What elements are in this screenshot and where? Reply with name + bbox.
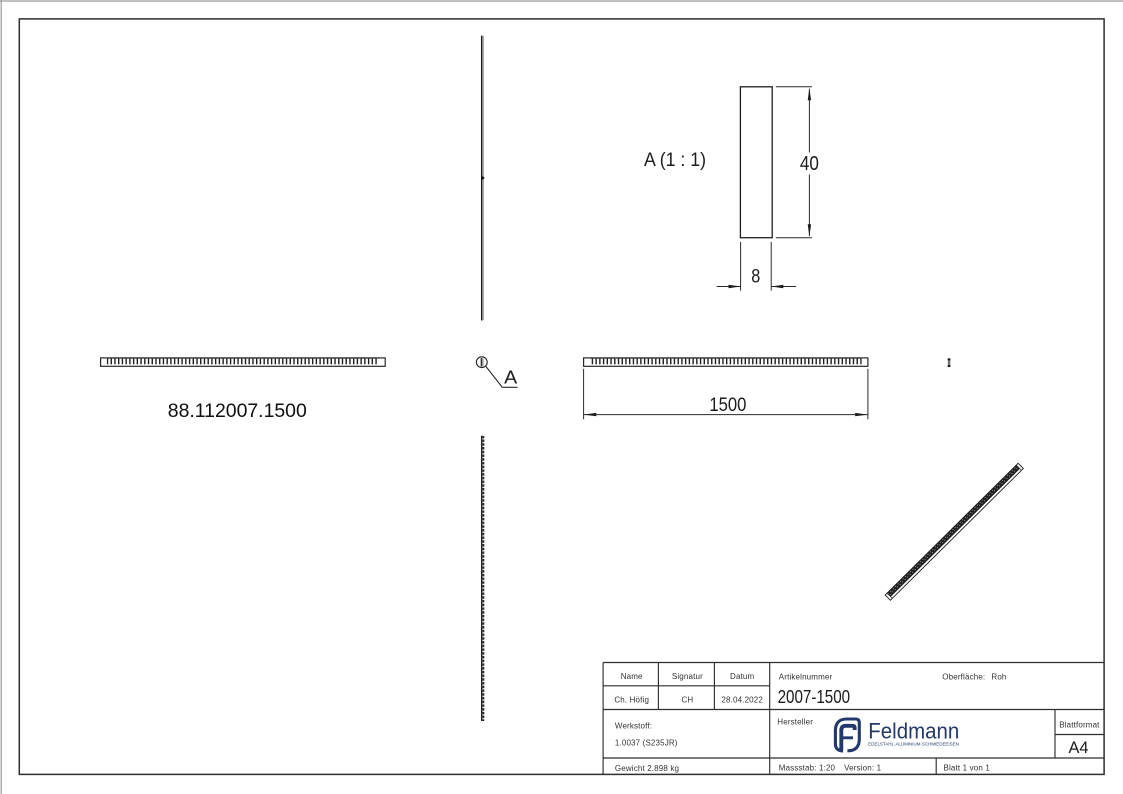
svg-text:Blattformat: Blattformat <box>1059 720 1100 729</box>
svg-text:Blatt 1 von 1: Blatt 1 von 1 <box>944 763 991 772</box>
svg-text:Werkstoff:: Werkstoff: <box>615 721 652 730</box>
svg-text:1.0037 (S235JR): 1.0037 (S235JR) <box>615 739 678 748</box>
svg-text:Datum: Datum <box>730 672 754 681</box>
svg-text:A: A <box>504 367 518 388</box>
svg-text:Name: Name <box>621 672 643 681</box>
svg-text:2007-1500: 2007-1500 <box>778 687 851 707</box>
svg-text:Roh: Roh <box>991 672 1006 681</box>
svg-text:Feldmann: Feldmann <box>868 719 959 744</box>
svg-text:88.112007.1500: 88.112007.1500 <box>168 400 307 422</box>
svg-text:Gewicht 2.898 kg: Gewicht 2.898 kg <box>615 764 679 773</box>
svg-text:Version: 1: Version: 1 <box>844 763 881 772</box>
svg-text:Massstab: 1:20: Massstab: 1:20 <box>779 763 836 772</box>
svg-text:8: 8 <box>751 266 760 288</box>
svg-text:EDELSTAHL·ALUMINIUM·SCHMIEDEEI: EDELSTAHL·ALUMINIUM·SCHMIEDEEISEN <box>868 742 959 747</box>
svg-text:1500: 1500 <box>709 394 746 416</box>
svg-text:Oberfläche:: Oberfläche: <box>942 672 985 681</box>
svg-text:Ch. Höfig: Ch. Höfig <box>614 696 649 705</box>
svg-text:Signatur: Signatur <box>672 672 703 681</box>
svg-text:28.04.2022: 28.04.2022 <box>721 696 763 705</box>
svg-text:CH: CH <box>681 696 693 705</box>
svg-text:A4: A4 <box>1069 739 1089 757</box>
svg-text:Artikelnummer: Artikelnummer <box>779 672 833 681</box>
svg-text:40: 40 <box>800 153 819 175</box>
svg-text:A (1 : 1): A (1 : 1) <box>644 150 706 171</box>
svg-text:Hersteller: Hersteller <box>777 718 813 727</box>
